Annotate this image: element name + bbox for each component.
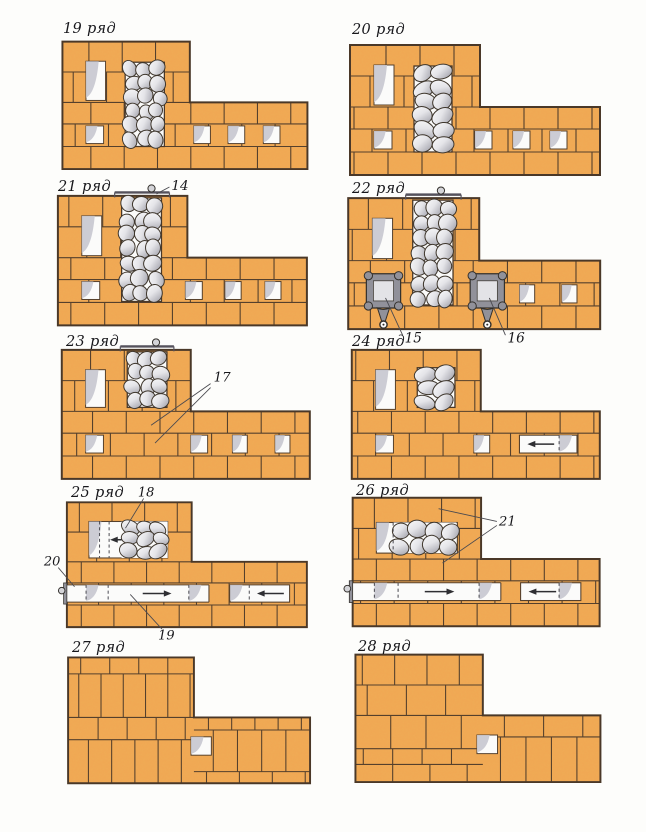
brick-texture xyxy=(350,348,602,481)
row-label-25: 25 ряд xyxy=(71,485,124,501)
valve-fitting xyxy=(59,583,67,604)
diagram-row-19 xyxy=(35,24,309,187)
row-label-28: 28 ряд xyxy=(358,639,411,655)
callout-21: 21 xyxy=(498,515,516,530)
diagram-row-23: 17 xyxy=(34,332,312,497)
row-label-26: 26 ряд xyxy=(356,483,409,499)
row-label-23: 23 ряд xyxy=(66,334,119,350)
stone xyxy=(392,523,410,539)
stone xyxy=(412,135,432,153)
brick-texture xyxy=(60,348,312,481)
valve-fitting xyxy=(344,581,353,603)
diagram-row-27 xyxy=(41,640,312,801)
rod-knob xyxy=(148,185,155,192)
diagram-row-26: 21 xyxy=(325,480,602,644)
rod-knob xyxy=(437,187,444,194)
diagram-row-25: 182019 xyxy=(40,485,309,644)
callout-18: 18 xyxy=(138,485,154,500)
callout-20: 20 xyxy=(43,554,60,569)
brick-texture xyxy=(56,194,309,327)
row-label-27: 27 ряд xyxy=(72,640,125,656)
row-label-22: 22 ряд xyxy=(352,181,405,197)
brick-texture xyxy=(60,40,309,171)
callout-17: 17 xyxy=(214,371,232,386)
scanned-diagram-page: 19 ряд20 ряд1421 ряд151622 ряд1723 ряд24… xyxy=(0,0,646,832)
row-label-24: 24 ряд xyxy=(352,334,405,350)
brick-texture xyxy=(66,655,312,785)
diagram-row-22: 1516 xyxy=(320,180,602,347)
diagram-row-20 xyxy=(322,27,602,193)
brick-texture xyxy=(65,500,309,629)
diagram-row-24 xyxy=(324,332,602,497)
brick-texture xyxy=(351,496,602,628)
stone xyxy=(145,239,160,257)
rod-knob xyxy=(153,339,160,346)
stone xyxy=(436,275,453,292)
row-label-19: 19 ряд xyxy=(63,21,116,37)
callout-14: 14 xyxy=(172,179,189,194)
row-label-20: 20 ряд xyxy=(352,22,405,38)
diagram-row-28 xyxy=(328,637,602,800)
diagram-row-21: 14 xyxy=(30,178,309,343)
row-label-21: 21 ряд xyxy=(58,179,111,195)
